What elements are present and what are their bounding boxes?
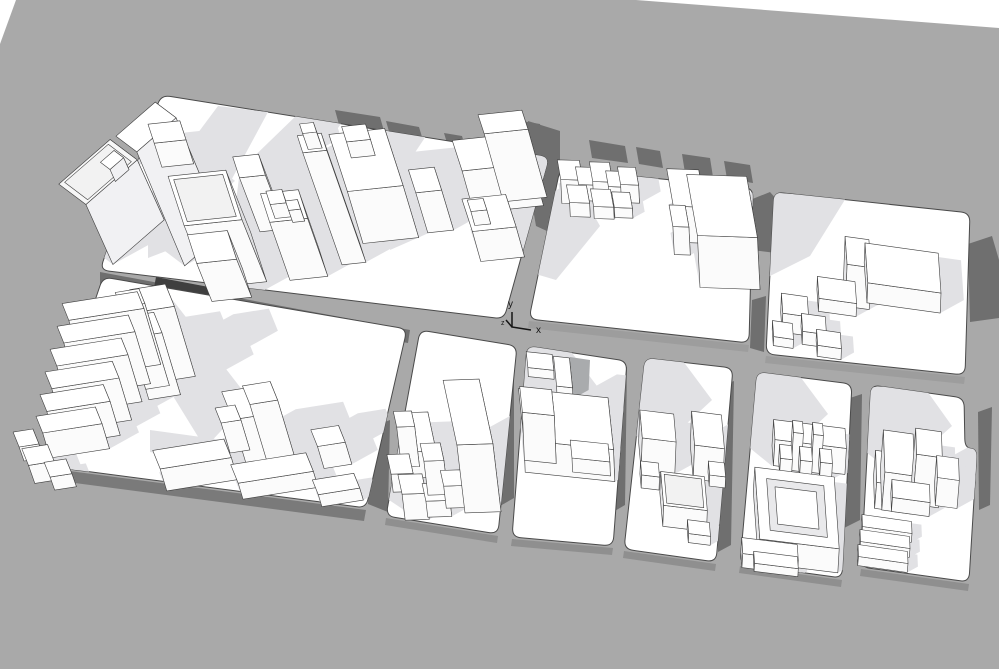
svg-text:z: z	[501, 320, 505, 327]
svg-text:x: x	[536, 325, 541, 336]
svg-text:y: y	[508, 299, 513, 310]
